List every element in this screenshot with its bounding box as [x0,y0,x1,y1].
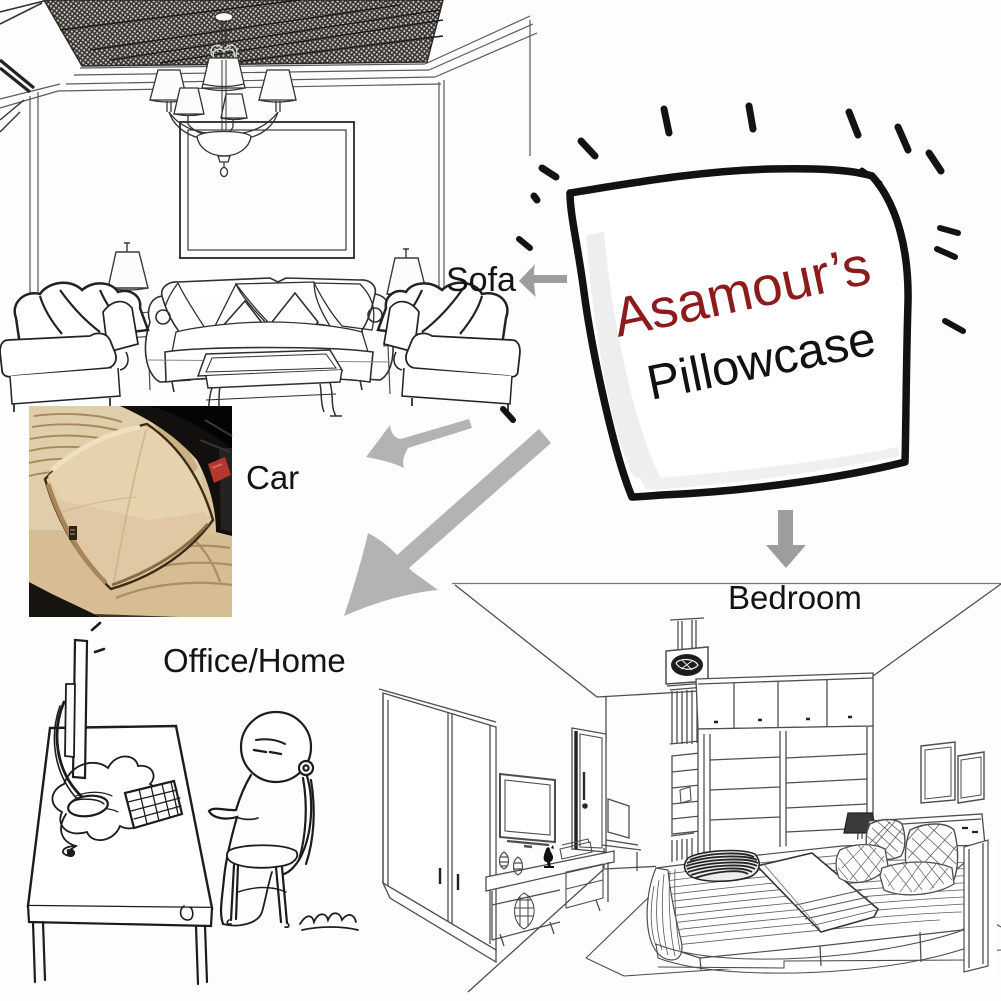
svg-text:Office/Home: Office/Home [163,642,346,679]
svg-text:Sofa: Sofa [446,261,516,299]
svg-text:Car: Car [246,459,299,496]
svg-text:Bedroom: Bedroom [728,579,862,616]
